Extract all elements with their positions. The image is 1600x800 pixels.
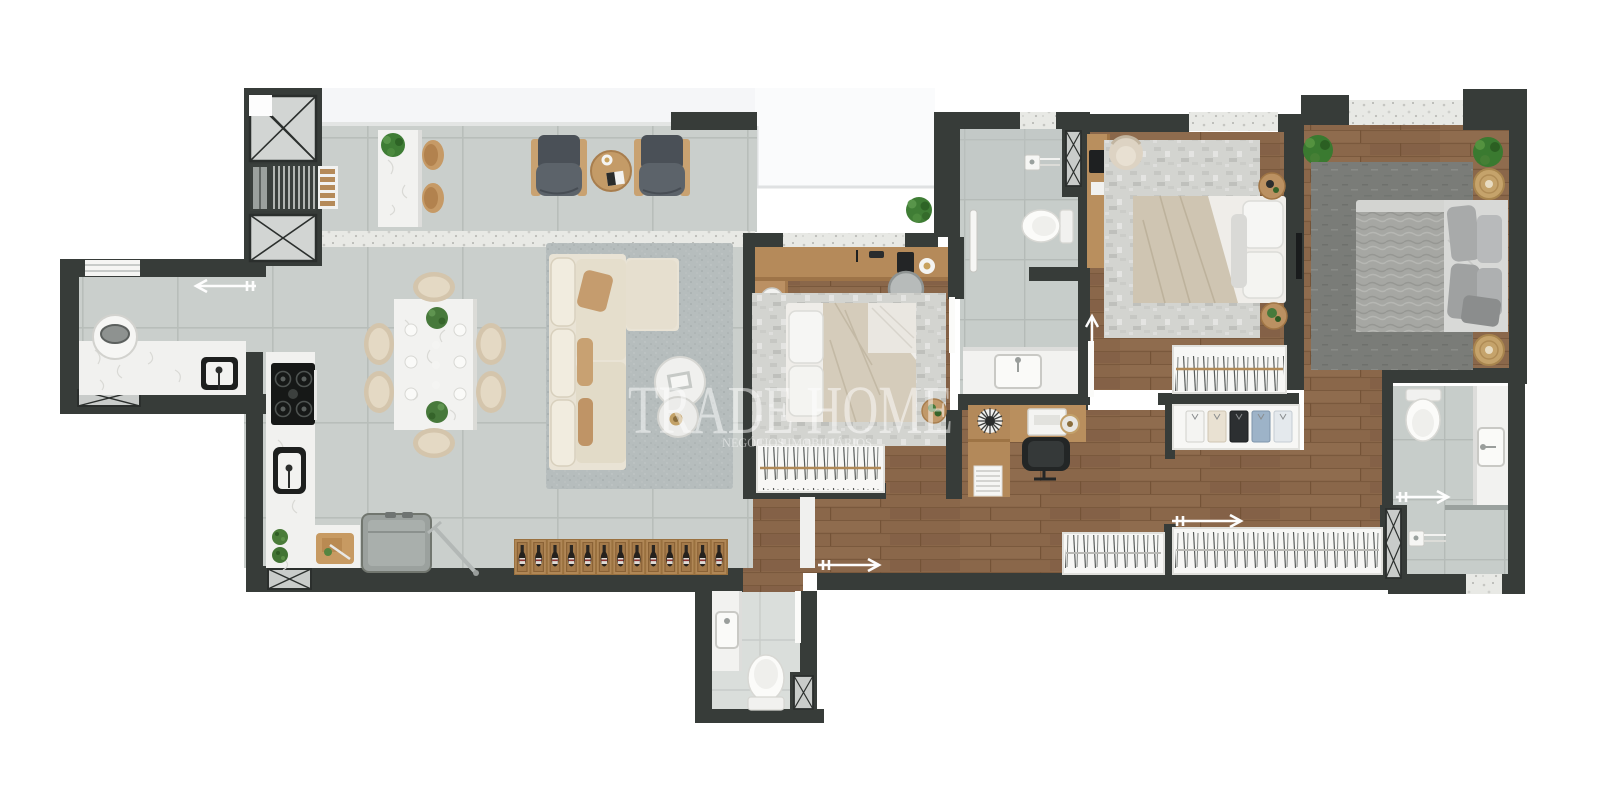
svg-text:NEGÓCIOS IMOBILIÁRIOS: NEGÓCIOS IMOBILIÁRIOS bbox=[722, 436, 872, 450]
